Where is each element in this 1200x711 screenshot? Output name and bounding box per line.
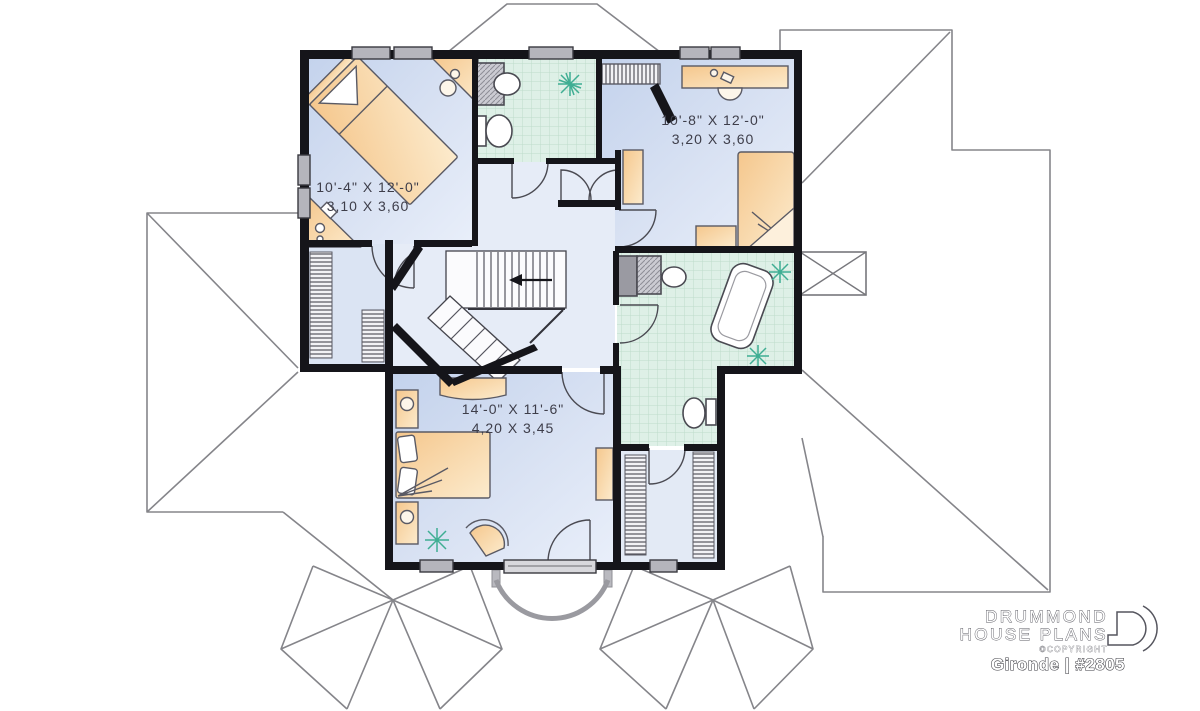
balcony-railing [492, 570, 612, 618]
bedroom2-tall-dresser [623, 150, 643, 204]
window [650, 560, 677, 572]
window [711, 47, 740, 59]
floor-plan-canvas: 10'-4" X 12'-0" 3,10 X 3,60 10'-8" X 12'… [0, 0, 1200, 711]
roof-bay-right [600, 566, 813, 709]
plan-title: Gironde | #2805 [991, 655, 1125, 674]
plant-icon [425, 528, 449, 552]
logo-line2: HOUSE PLANS [960, 625, 1108, 644]
bathroom2-cabinet [618, 256, 637, 296]
window [680, 47, 709, 59]
wall-step-right [717, 366, 802, 374]
bathroom1-toilet-tank [477, 116, 486, 146]
bedroom2-dresser [696, 226, 736, 248]
master-nightstand-bottom [396, 502, 418, 544]
window [529, 47, 573, 59]
bathroom1-toilet [486, 115, 512, 147]
logo-copyright: ©COPYRIGHT [1040, 645, 1108, 654]
master-armoire [596, 448, 613, 500]
bedroom1-dim-metric: 3,10 X 3,60 [327, 198, 410, 214]
chimney-box [800, 252, 866, 295]
bathroom1-sink [494, 73, 520, 95]
wall-left-lower [385, 364, 393, 570]
master-nightstand-top [396, 390, 418, 428]
drummond-logo: DRUMMOND HOUSE PLANS ©COPYRIGHT Gironde … [960, 606, 1158, 674]
window [420, 560, 453, 572]
roof-top-dormer [448, 4, 660, 52]
master-dim-metric: 4,20 X 3,45 [472, 420, 555, 436]
bedroom2-dim-imperial: 10'-8" X 12'-0" [661, 112, 764, 128]
bedroom1-dim-imperial: 10'-4" X 12'-0" [316, 179, 419, 195]
wall-right-upper [794, 50, 802, 374]
master-bed [396, 432, 490, 498]
bathroom2-toilet-tank [706, 399, 716, 425]
closet2-rod [602, 64, 660, 84]
drummond-d-icon [1108, 606, 1157, 651]
window [394, 47, 432, 59]
bathroom2-sink [662, 267, 686, 287]
floor-plan-page: 10'-4" X 12'-0" 3,10 X 3,60 10'-8" X 12'… [0, 0, 1200, 711]
roof-right [780, 30, 1050, 592]
window [298, 188, 310, 218]
plant-icon [558, 72, 582, 96]
window [352, 47, 390, 59]
bedroom2-dim-metric: 3,20 X 3,60 [672, 131, 755, 147]
plant-icon [769, 261, 791, 283]
bathroom2-vanity [637, 256, 661, 294]
bedroom2-desk [682, 66, 788, 88]
bedroom2-bed [738, 152, 794, 250]
plant-icon [747, 345, 769, 367]
bathroom2-toilet [683, 398, 705, 428]
master-dim-imperial: 14'-0" X 11'-6" [462, 401, 564, 417]
window [298, 155, 310, 185]
wall-right-lower [717, 366, 725, 570]
wall-step-left [300, 364, 393, 372]
roof-bay-left [281, 566, 502, 709]
logo-line1: DRUMMOND [985, 607, 1108, 626]
